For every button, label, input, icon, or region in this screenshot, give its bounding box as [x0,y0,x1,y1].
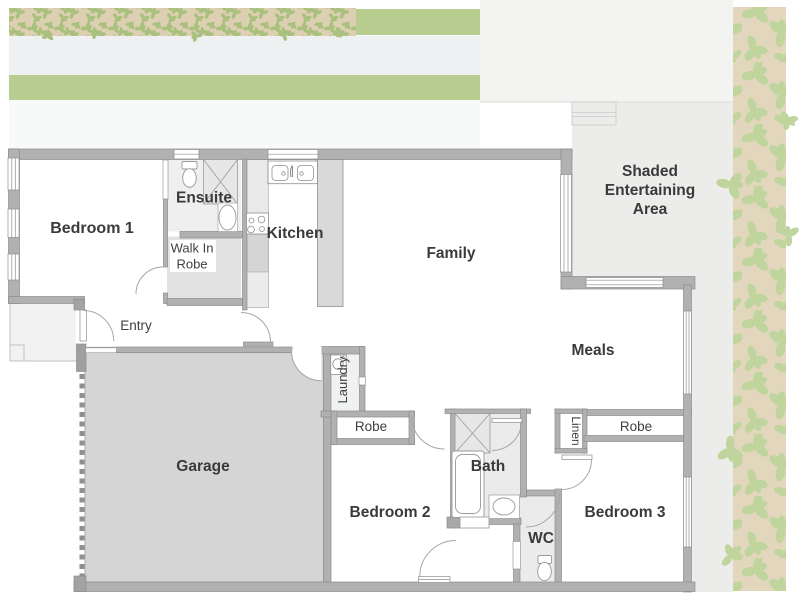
svg-text:Robe: Robe [176,257,207,272]
svg-text:Bedroom 1: Bedroom 1 [50,220,134,237]
svg-text:Family: Family [426,245,475,262]
svg-text:Bedroom 3: Bedroom 3 [585,504,666,521]
svg-text:Bedroom 2: Bedroom 2 [350,504,431,521]
svg-text:Robe: Robe [620,419,652,434]
svg-text:Robe: Robe [355,419,387,434]
svg-text:Kitchen: Kitchen [267,225,324,242]
svg-text:Ensuite: Ensuite [176,190,232,207]
svg-text:Entry: Entry [120,318,152,333]
svg-text:Walk In: Walk In [171,241,214,256]
svg-text:Garage: Garage [176,458,230,475]
svg-text:Shaded: Shaded [622,163,678,180]
svg-text:Area: Area [633,201,668,218]
svg-text:Entertaining: Entertaining [605,182,695,199]
svg-text:Meals: Meals [571,342,614,359]
svg-text:Bath: Bath [471,458,505,475]
svg-text:Laundry: Laundry [335,356,350,403]
svg-text:WC: WC [528,530,554,547]
svg-text:Linen: Linen [569,416,583,445]
